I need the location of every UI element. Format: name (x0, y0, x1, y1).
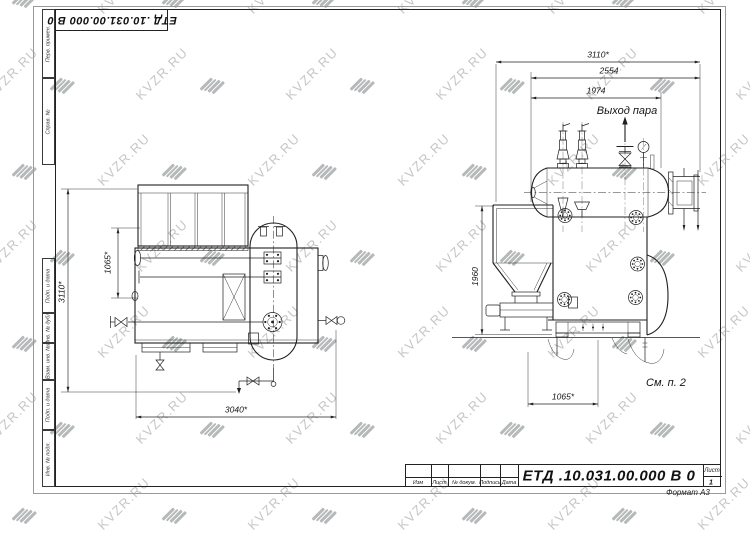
tb-col-izm: Изм (413, 480, 423, 486)
watermark-logo-icon (161, 504, 189, 532)
watermark-logo-icon (311, 504, 339, 532)
document-designation: ЕТД .10.031.00.000 В 0 (523, 468, 696, 485)
watermark-text: KVZR.RU (0, 474, 3, 532)
top-designation-box: ЕТД .10.031.00.000 В 0 (55, 9, 168, 31)
stamp-podp-data-1: Подп. и дата (42, 258, 55, 313)
stamp-podp-data-2: Подп. и дата (42, 380, 55, 430)
tb-col-podpis: Подпись (479, 480, 501, 486)
title-block: Изм Лист № докум. Подпись Дата ЕТД .10.0… (405, 464, 721, 487)
watermark-logo-icon (11, 504, 39, 532)
top-designation-text: ЕТД .10.031.00.000 В 0 (47, 14, 177, 26)
watermark-text: KVZR.RU (0, 130, 3, 188)
watermark-text: KVZR.RU (733, 388, 750, 446)
drawing-frame (55, 9, 721, 487)
stamp-vzam-inv: Взам. инв. № (42, 343, 55, 380)
sheet-label: Лист (704, 468, 719, 474)
watermark-text: KVZR.RU (733, 216, 750, 274)
watermark-logo-icon (611, 504, 639, 532)
tb-col-dokum: № докум. (452, 480, 476, 486)
stamp-inv-podl: Инв. № подл. (42, 430, 55, 487)
tb-divider (448, 465, 449, 486)
tb-divider (518, 465, 519, 486)
tb-col-data: Дата (502, 480, 517, 486)
watermark-text: KVZR.RU (733, 44, 750, 102)
tb-divider (406, 477, 518, 478)
format-label: Формат А3 (658, 488, 718, 497)
stamp-inv-dubl: Инв. № дубл. (42, 313, 55, 343)
sheet-number: 1 (709, 478, 713, 487)
tb-col-list: Лист (432, 480, 446, 486)
watermark-text: KVZR.RU (0, 0, 3, 17)
watermark-logo-icon (461, 504, 489, 532)
stamp-sprav-no: Справ. № (42, 78, 55, 165)
watermark-text: KVZR.RU (0, 302, 3, 360)
